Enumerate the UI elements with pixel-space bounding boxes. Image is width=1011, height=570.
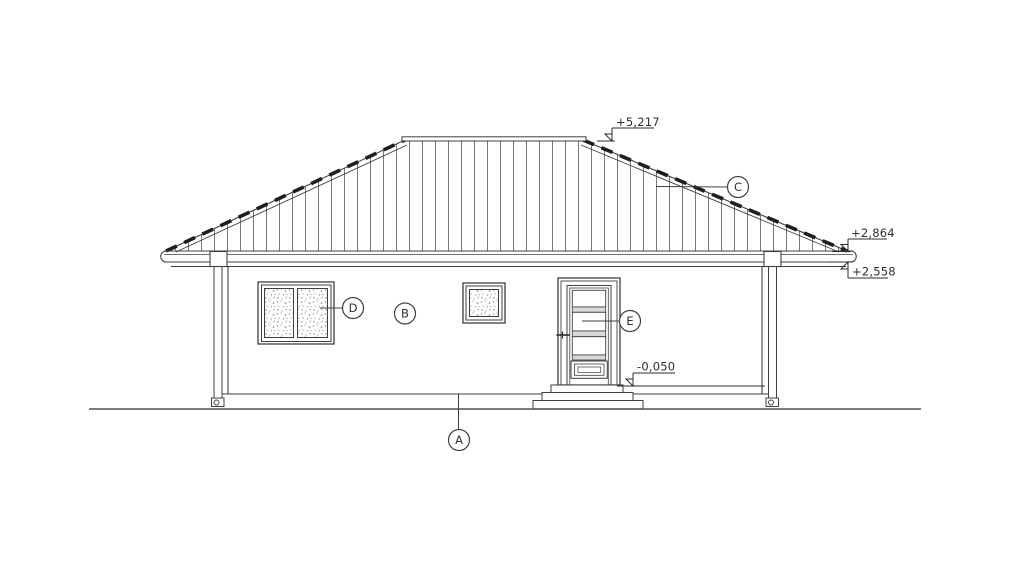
label-b-text: B [401, 307, 409, 321]
level-value-entry: -0,050 [637, 360, 675, 374]
label-a: A [449, 394, 470, 451]
window-left-pane-1 [265, 289, 294, 338]
level-value-eave-bottom: +2,558 [852, 265, 896, 279]
level-marker-eave-top: +2,864 [832, 226, 895, 252]
door-rail-1 [572, 307, 605, 312]
eaves-gutter [161, 251, 857, 267]
label-e-text: E [626, 314, 633, 328]
door-rail-2 [572, 331, 605, 337]
downspout-right [766, 267, 779, 407]
downspout-left-shoe [212, 398, 225, 407]
collector-box-left [210, 252, 227, 267]
level-marker-eave-bottom: +2,558 [828, 262, 896, 279]
gutter-end-cap-right [851, 251, 856, 262]
step-top [551, 385, 623, 393]
level-value-ridge: +5,217 [616, 115, 660, 129]
window-small-pane [470, 290, 499, 317]
label-c-text: C [734, 180, 742, 194]
step-bottom [533, 401, 643, 409]
ridge-cap [402, 137, 586, 141]
label-a-text: A [455, 433, 463, 447]
collector-box-right [764, 252, 781, 267]
entrance-door [557, 278, 621, 385]
downspout-left [212, 267, 225, 407]
entrance-steps [533, 385, 643, 409]
level-marker-ridge: +5,217 [597, 115, 660, 141]
window-left-pane-2 [298, 289, 328, 338]
step-middle [542, 393, 633, 401]
level-marker-entry: -0,050 [617, 360, 765, 387]
label-c-leader [656, 187, 728, 188]
downspout-right-shoe [766, 398, 779, 407]
door-rail-3 [572, 355, 605, 360]
door-glass-pane-3 [572, 337, 605, 355]
door-glass-pane-1 [572, 290, 605, 307]
gutter-end-cap-left [161, 251, 166, 262]
door-glass-pane-2 [572, 312, 605, 331]
elevation-sheet: +5,217 +2,864 +2,558 -0,050 A B [0, 0, 1011, 570]
window-small [463, 283, 505, 323]
elevation-drawing: +5,217 +2,864 +2,558 -0,050 A B [0, 0, 1011, 570]
level-value-eave-top: +2,864 [851, 226, 895, 240]
window-left [258, 282, 334, 344]
label-b: B [395, 303, 416, 324]
label-d-text: D [349, 301, 358, 315]
